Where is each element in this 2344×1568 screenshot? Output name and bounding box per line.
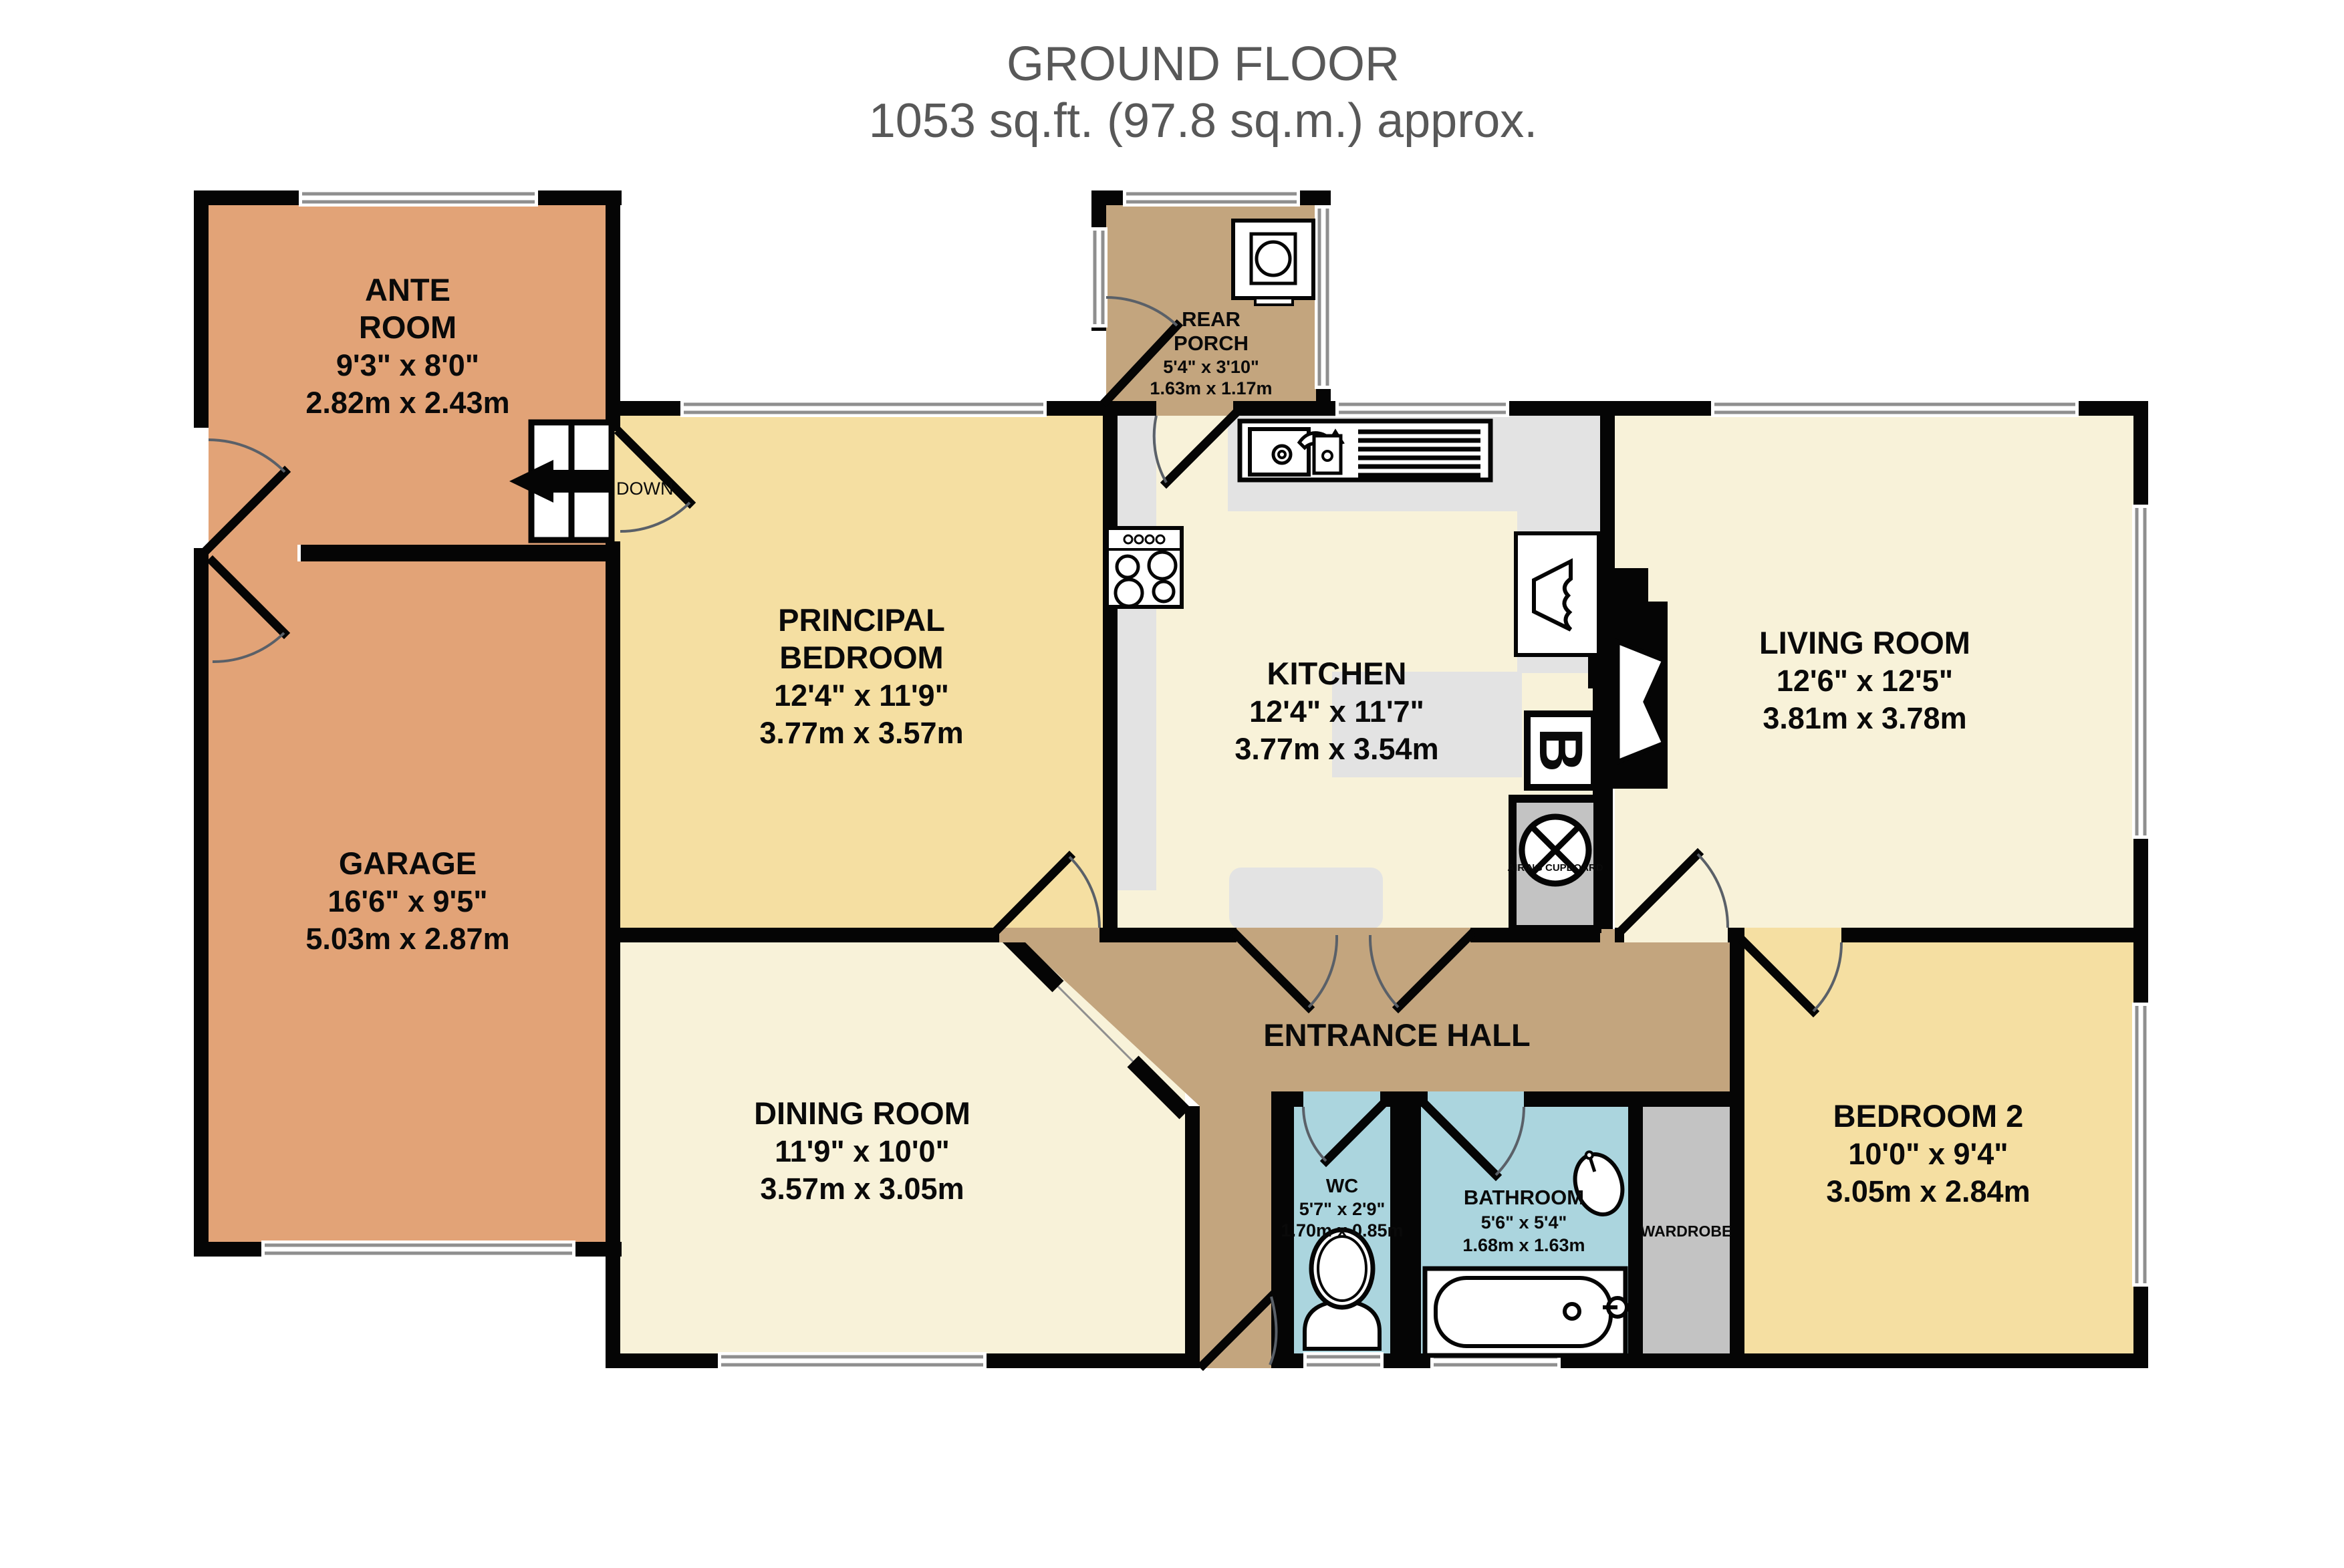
svg-text:5'7" x 2'9": 5'7" x 2'9" [1299, 1199, 1386, 1219]
down-label: DOWN [616, 479, 673, 499]
svg-text:BEDROOM: BEDROOM [779, 640, 943, 675]
svg-text:12'4" x 11'9": 12'4" x 11'9" [774, 678, 949, 712]
ante-exterior-door-opening [194, 428, 209, 548]
toilet-icon [1305, 1230, 1380, 1349]
svg-text:5.03m x 2.87m: 5.03m x 2.87m [305, 922, 509, 956]
bedroom-2-door-opening [1744, 928, 1841, 942]
porch-left-window [1090, 227, 1108, 328]
living-room-label: LIVING ROOM 12'6" x 12'5" 3.81m x 3.78m [1759, 625, 1970, 735]
dining-room-window [718, 1352, 987, 1369]
svg-text:1.68m x 1.63m: 1.68m x 1.63m [1462, 1235, 1585, 1255]
principal-bedroom-window [680, 400, 1047, 417]
svg-text:3.57m x 3.05m: 3.57m x 3.05m [760, 1172, 964, 1206]
garage-window [261, 1240, 575, 1258]
bedroom-2-side-window [2132, 1003, 2150, 1287]
svg-text:12'6" x 12'5": 12'6" x 12'5" [1777, 664, 1953, 698]
svg-text:KITCHEN: KITCHEN [1267, 656, 1407, 691]
svg-text:10'0" x 9'4": 10'0" x 9'4" [1848, 1137, 2008, 1171]
porch-top-window [1123, 189, 1300, 207]
page-title: GROUND FLOOR [1007, 37, 1400, 91]
svg-text:BEDROOM 2: BEDROOM 2 [1833, 1098, 2024, 1134]
wardrobe-label: WARDROBE [1641, 1222, 1732, 1240]
kitchen-window [1335, 400, 1509, 417]
svg-text:DINING ROOM: DINING ROOM [754, 1095, 970, 1131]
page-subtitle: 1053 sq.ft. (97.8 sq.m.) approx. [869, 94, 1538, 148]
bedroom-2-label: BEDROOM 2 10'0" x 9'4" 3.05m x 2.84m [1826, 1098, 2030, 1208]
svg-text:1.70m x 0.85m: 1.70m x 0.85m [1281, 1220, 1403, 1240]
svg-text:LIVING ROOM: LIVING ROOM [1759, 625, 1970, 660]
svg-text:REAR: REAR [1182, 307, 1241, 331]
svg-text:11'9" x 10'0": 11'9" x 10'0" [775, 1134, 950, 1168]
living-room-side-window [2132, 505, 2150, 839]
svg-text:PRINCIPAL: PRINCIPAL [778, 602, 945, 638]
svg-text:9'3" x 8'0": 9'3" x 8'0" [336, 348, 479, 382]
svg-text:1.63m x 1.17m: 1.63m x 1.17m [1150, 378, 1272, 398]
svg-text:3.81m x 3.78m: 3.81m x 3.78m [1763, 701, 1966, 735]
dining-room-label: DINING ROOM 11'9" x 10'0" 3.57m x 3.05m [754, 1095, 970, 1206]
kitchen-hall-opening [1236, 928, 1470, 942]
bathroom-label: BATHROOM 5'6" x 5'4" 1.68m x 1.63m [1462, 1186, 1585, 1255]
counter-left [1118, 416, 1156, 890]
wc-door-opening [1303, 1091, 1380, 1107]
bathtub-icon [1425, 1269, 1627, 1355]
porch-exterior-door-opening [1091, 331, 1106, 401]
kitchen-appliance-icon [1516, 533, 1599, 655]
svg-text:16'6" x 9'5": 16'6" x 9'5" [328, 884, 487, 918]
svg-text:WC: WC [1326, 1176, 1358, 1197]
ante-window [299, 189, 538, 207]
svg-text:2.82m x 2.43m: 2.82m x 2.43m [305, 386, 509, 420]
svg-text:3.77m x 3.57m: 3.77m x 3.57m [759, 716, 963, 750]
airing-cupboard-label: AIRING CUPBOARD [1507, 862, 1603, 874]
porch-kitchen-door-opening [1156, 401, 1233, 416]
svg-text:PORCH: PORCH [1174, 332, 1249, 355]
ante-garage-door-opening [209, 545, 297, 561]
airing-cupboard-icon: AIRING CUPBOARD [1507, 799, 1603, 929]
counter-peninsula [1229, 868, 1383, 929]
svg-text:ANTE: ANTE [365, 272, 450, 307]
washing-machine-icon [1233, 221, 1313, 305]
svg-text:ROOM: ROOM [359, 309, 457, 345]
floor-plan: B AIRING CUPBOARD [0, 0, 2344, 1568]
svg-text:GARAGE: GARAGE [339, 845, 477, 881]
svg-text:12'4" x 11'7": 12'4" x 11'7" [1249, 694, 1424, 729]
kitchen-sink-icon [1240, 421, 1490, 480]
svg-text:3.77m x 3.54m: 3.77m x 3.54m [1234, 732, 1438, 766]
svg-text:5'6" x 5'4": 5'6" x 5'4" [1481, 1212, 1567, 1232]
stove-icon [1107, 528, 1182, 607]
svg-text:5'4" x 3'10": 5'4" x 3'10" [1163, 357, 1259, 377]
entrance-hall-label: ENTRANCE HALL [1263, 1017, 1530, 1053]
boiler-label: B [1527, 728, 1595, 772]
bathroom-door-opening [1428, 1091, 1524, 1107]
porch-right-window [1315, 205, 1332, 389]
svg-text:3.05m x 2.84m: 3.05m x 2.84m [1826, 1174, 2030, 1208]
svg-text:BATHROOM: BATHROOM [1464, 1186, 1584, 1209]
living-room-top-window [1711, 400, 2079, 417]
bedroom-door-opening [999, 928, 1099, 942]
boiler-icon: B [1527, 714, 1595, 787]
living-door-opening [1624, 928, 1728, 942]
wc-window [1303, 1352, 1384, 1369]
